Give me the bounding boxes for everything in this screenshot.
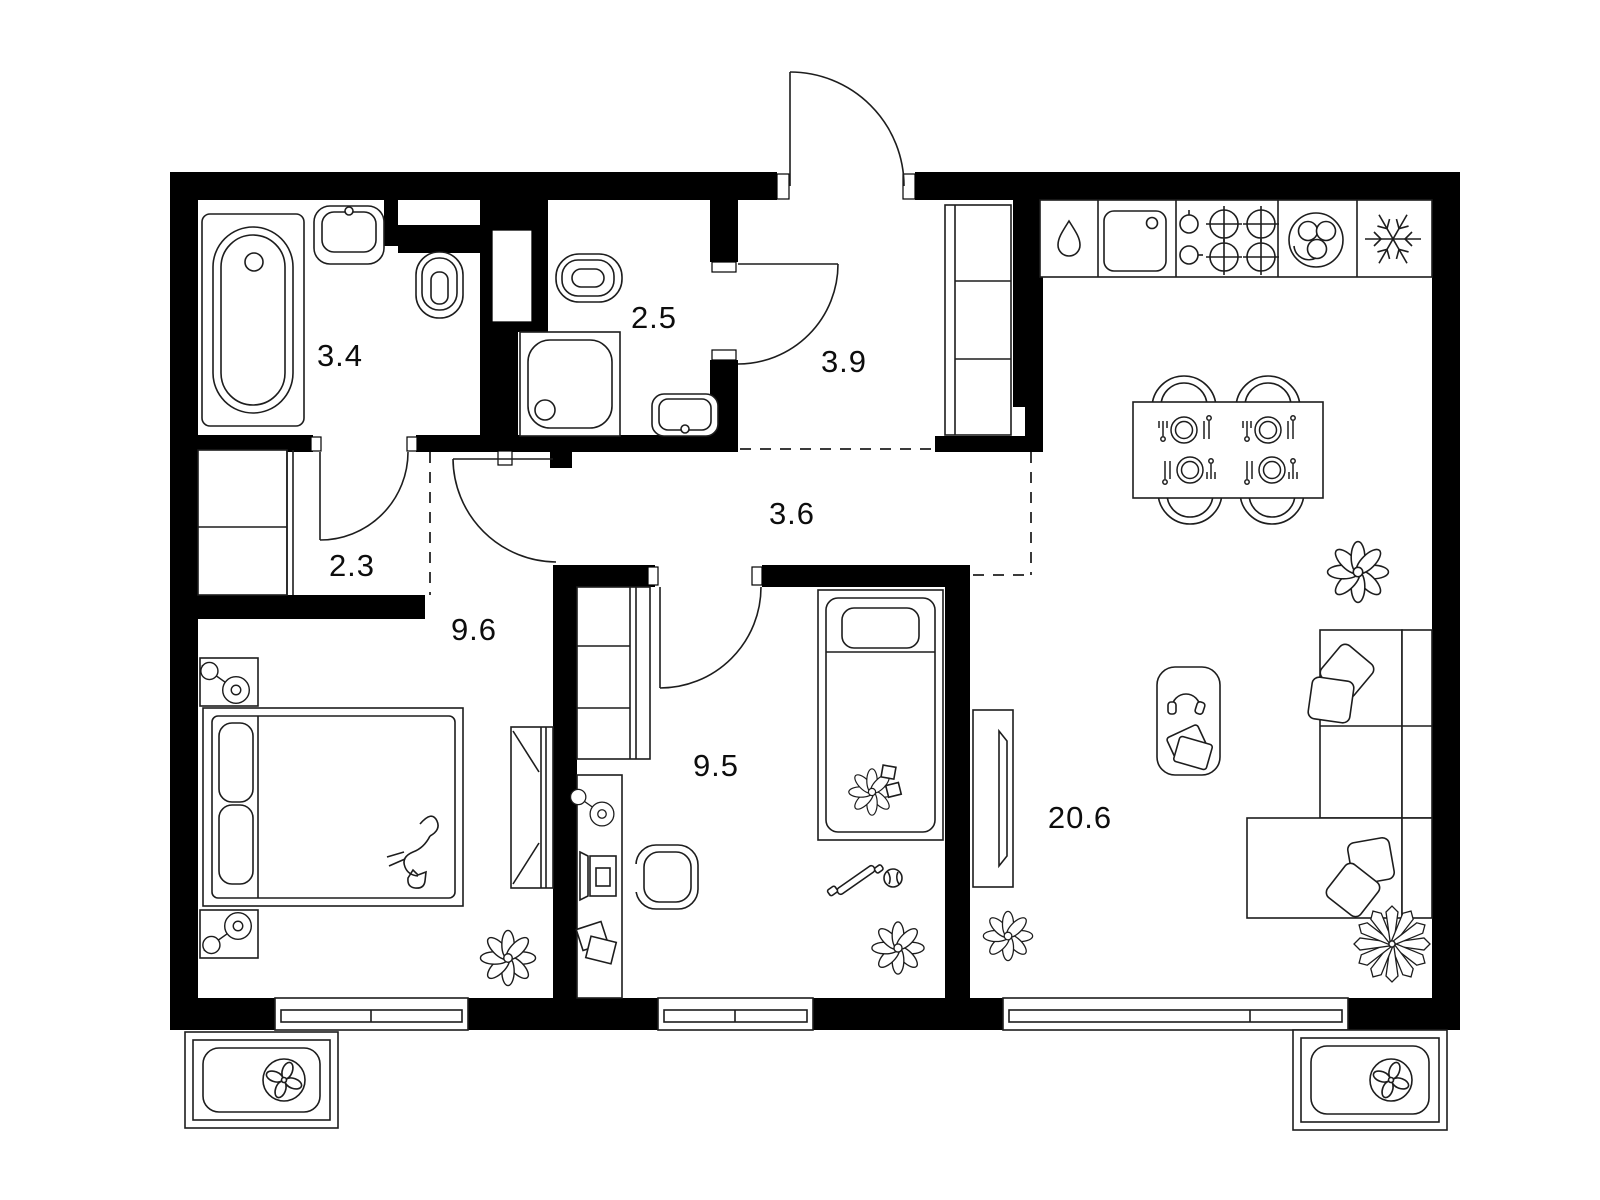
coffee-table xyxy=(1157,667,1220,775)
bedroom-window xyxy=(275,998,468,1030)
scooter-toy-icon xyxy=(827,857,884,903)
floor-plan-canvas: 3.4 2.5 3.9 2.3 3.6 9.6 9.5 20.6 xyxy=(0,0,1600,1200)
bathroom-toilet xyxy=(416,252,463,318)
room-label-kids-room: 9.5 xyxy=(693,748,739,783)
living-room-furniture xyxy=(973,542,1432,982)
shower-tray xyxy=(520,332,620,436)
shower-sink xyxy=(652,394,718,436)
room-label-bedroom: 9.6 xyxy=(451,612,497,647)
room-label-corridor: 3.6 xyxy=(769,496,815,531)
bedroom-furniture xyxy=(200,658,553,986)
vent-unit-left xyxy=(185,1032,338,1128)
plant-icon xyxy=(1328,542,1389,603)
living-room-window xyxy=(1003,998,1348,1030)
kids-room-window xyxy=(658,998,813,1030)
plant-pot xyxy=(886,782,902,797)
wall-shaft-niche xyxy=(492,230,532,322)
room-label-bathroom: 3.4 xyxy=(317,338,363,373)
corner-sofa xyxy=(1247,630,1432,919)
kids-wardrobe xyxy=(577,587,650,759)
kitchen-sink-icon xyxy=(1104,211,1166,271)
dining-set xyxy=(1133,376,1323,524)
room-label-kitchen-living: 20.6 xyxy=(1048,800,1112,835)
double-bed xyxy=(203,708,463,906)
hallway-wardrobe xyxy=(945,205,1011,435)
shower-room-fixtures xyxy=(520,254,718,436)
windows xyxy=(275,998,1348,1030)
fan-icon xyxy=(263,1059,305,1101)
closet-shelving xyxy=(198,450,293,595)
entrance-door xyxy=(790,72,904,186)
bathtub xyxy=(202,214,304,426)
kids-room-door xyxy=(660,587,761,688)
plant-icon xyxy=(480,930,535,985)
tv-unit xyxy=(973,710,1013,887)
shower-toilet xyxy=(556,254,622,302)
pillow xyxy=(842,608,919,648)
bedroom-wardrobe xyxy=(511,727,553,888)
vent-unit-right xyxy=(1293,1030,1447,1130)
ball-toy-icon xyxy=(884,869,902,887)
kitchen-counter xyxy=(1040,200,1432,277)
fruit-bowl-icon xyxy=(1289,213,1343,267)
plant-icon xyxy=(872,922,924,974)
bathroom-door xyxy=(320,452,408,540)
kids-room-furniture xyxy=(571,587,943,998)
plant-icon xyxy=(983,911,1032,960)
sofa-pillow xyxy=(1307,676,1354,723)
room-label-hallway: 3.9 xyxy=(821,344,867,379)
vent-units xyxy=(185,1030,1447,1130)
bedroom-door xyxy=(453,459,556,562)
kids-desk xyxy=(571,775,622,998)
room-label-shower-room: 2.5 xyxy=(631,300,677,335)
pillow xyxy=(219,723,253,802)
room-label-closet: 2.3 xyxy=(329,548,375,583)
bathroom-sink xyxy=(314,206,384,264)
floor-plan: 3.4 2.5 3.9 2.3 3.6 9.6 9.5 20.6 xyxy=(0,0,1600,1200)
pillow xyxy=(219,805,253,884)
laptop-icon xyxy=(580,852,616,900)
fan-icon xyxy=(1370,1059,1412,1101)
plant-pot xyxy=(881,765,896,779)
desk-chair xyxy=(633,845,698,909)
